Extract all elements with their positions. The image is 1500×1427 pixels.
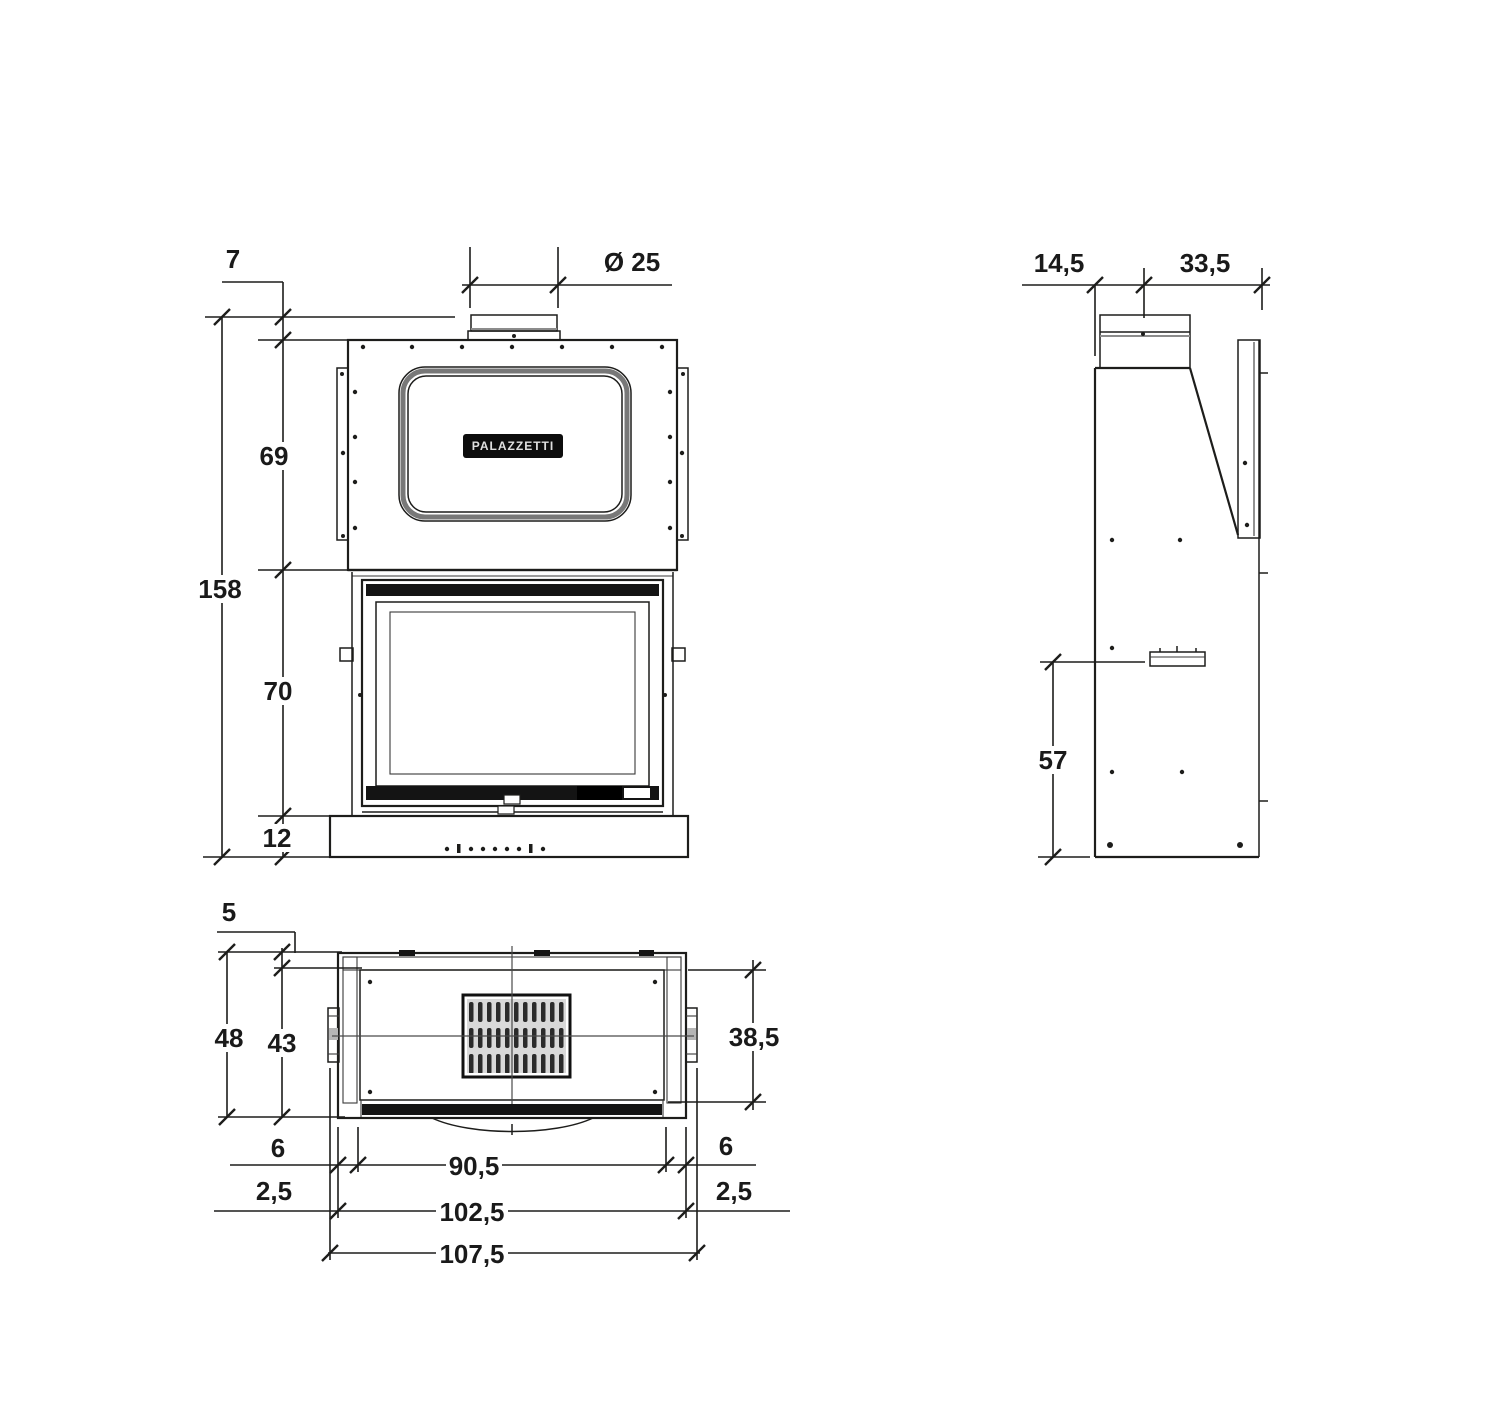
dim-left-side: 6 xyxy=(271,1133,285,1163)
plan-view xyxy=(328,946,697,1135)
glass-frame xyxy=(376,602,649,786)
flue-collar xyxy=(468,315,560,340)
dim-outlet-height: 57 xyxy=(1039,745,1068,775)
side-view-dimensions: 14,5 33,5 57 xyxy=(1022,248,1270,865)
hinge-tabs xyxy=(340,648,685,661)
dim-hood-height: 69 xyxy=(260,441,289,471)
dim-total-width: 107,5 xyxy=(439,1239,504,1269)
front-frame-edge xyxy=(1238,340,1260,538)
dim-left-edge: 2,5 xyxy=(256,1176,292,1206)
dim-flue-center-to-back: 33,5 xyxy=(1180,248,1231,278)
firebox-door xyxy=(348,570,677,816)
dim-inner-depth: 43 xyxy=(268,1028,297,1058)
side-view xyxy=(1095,315,1268,857)
drawing-canvas: PALAZZETTI xyxy=(0,0,1500,1427)
dim-total-depth: 48 xyxy=(215,1023,244,1053)
dim-firebox-height: 70 xyxy=(264,676,293,706)
dim-total-height: 158 xyxy=(198,574,241,604)
door-glass xyxy=(390,612,635,774)
dim-opening-width: 90,5 xyxy=(449,1151,500,1181)
dim-flue-diameter: Ø 25 xyxy=(604,247,660,277)
technical-drawing-page: PALAZZETTI xyxy=(0,0,1500,1427)
dim-base-height: 12 xyxy=(263,823,292,853)
dim-body-width: 102,5 xyxy=(439,1197,504,1227)
dim-flue-collar-height: 7 xyxy=(226,244,240,274)
brand-logo-text: PALAZZETTI xyxy=(472,439,554,453)
side-body xyxy=(1095,340,1268,857)
brand-plate: PALAZZETTI xyxy=(463,434,563,458)
side-outlet-bracket xyxy=(1150,646,1205,666)
dim-right-side: 6 xyxy=(719,1131,733,1161)
dim-right-edge: 2,5 xyxy=(716,1176,752,1206)
dim-wall-thickness: 5 xyxy=(222,897,236,927)
side-flue-collar xyxy=(1100,315,1190,368)
dimension-ticks xyxy=(1045,277,1270,865)
front-view: PALAZZETTI xyxy=(330,315,688,857)
side-holes xyxy=(1107,461,1249,848)
front-view-dimensions: 7 Ø 25 69 158 70 12 xyxy=(198,244,672,865)
door-top-band xyxy=(366,584,659,596)
dim-front-to-flue-center: 14,5 xyxy=(1034,248,1085,278)
dim-front-inner-depth: 38,5 xyxy=(729,1022,780,1052)
base-plinth xyxy=(330,816,688,857)
